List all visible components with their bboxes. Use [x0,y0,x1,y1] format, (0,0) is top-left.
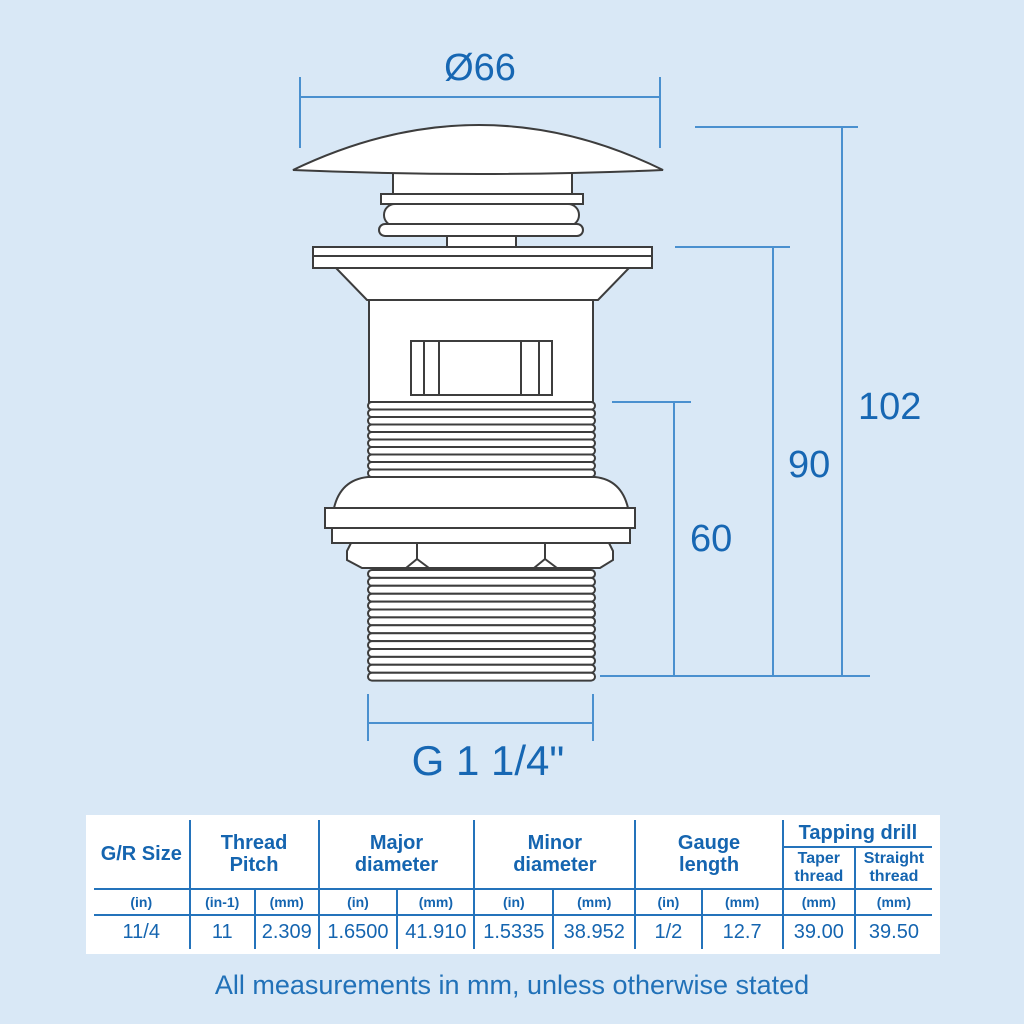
col-header-gauge-length: Gauge length [635,820,782,889]
backnut [347,543,613,568]
value-cell: 1/2 [635,915,701,949]
cap-assembly [293,125,663,248]
unit-cell: (mm) [855,889,932,915]
page: Ø66 102 90 60 G 1 1/4" [0,0,1024,1024]
base-assembly [325,477,635,568]
value-cell: 1.5335 [474,915,553,949]
value-cell: 1.6500 [319,915,398,949]
col-header-minor-diameter: Minor diameter [474,820,635,889]
value-cell: 38.952 [553,915,635,949]
unit-cell: (mm) [702,889,783,915]
spec-table-card: G/R Size Thread Pitch Major diameter Min… [86,815,940,954]
dim-height-102: 102 [695,127,921,676]
unit-cell: (mm) [397,889,474,915]
diameter-dimension-label: Ø66 [444,47,516,89]
value-cell: 11 [190,915,255,949]
value-cell: 39.00 [783,915,855,949]
dome-shoulder [334,477,628,508]
upper-thread [368,402,595,477]
unit-cell: (mm) [255,889,319,915]
unit-cell: (in) [635,889,701,915]
washer-plate-lower [332,528,630,543]
flange-assembly [313,247,652,300]
flange-taper [336,268,629,300]
unit-cell: (mm) [553,889,635,915]
value-cell: 39.50 [855,915,932,949]
body-height-dimension-label: 90 [788,444,830,486]
technical-drawing: Ø66 102 90 60 G 1 1/4" [0,0,1024,800]
spec-table: G/R Size Thread Pitch Major diameter Min… [94,820,932,949]
overflow-slot [411,341,552,395]
unit-cell: (in) [319,889,398,915]
lower-thread [368,570,595,681]
thread-height-dimension-label: 60 [690,518,732,560]
dim-height-90: 90 [675,247,830,676]
value-cell: 11/4 [94,915,190,949]
col-header-straight-thread: Straight thread [855,847,932,889]
gr-size-label: G/R Size [96,843,187,865]
footer-note: All measurements in mm, unless otherwise… [0,970,1024,1001]
o-ring-lower [379,224,583,236]
col-header-thread-pitch: Thread Pitch [190,820,319,889]
washer-plate [325,508,635,528]
col-header-gr-size: G/R Size [94,820,190,889]
waste-body [369,300,593,402]
value-cell: 2.309 [255,915,319,949]
col-header-taper-thread: Taper thread [783,847,855,889]
o-ring [384,204,579,226]
cap-dome [293,125,663,174]
value-cell: 41.910 [397,915,474,949]
col-header-major-diameter: Major diameter [319,820,475,889]
unit-cell: (mm) [783,889,855,915]
col-header-tapping-drill: Tapping drill [783,820,932,847]
unit-cell: (in-1) [190,889,255,915]
flange-plate [313,247,652,268]
dim-thread-size: G 1 1/4" [368,694,593,784]
unit-cell: (in) [94,889,190,915]
unit-cell: (in) [474,889,553,915]
gasket-plate [381,194,583,204]
thread-size-dimension-label: G 1 1/4" [412,737,565,784]
total-height-dimension-label: 102 [858,386,921,428]
value-cell: 12.7 [702,915,783,949]
